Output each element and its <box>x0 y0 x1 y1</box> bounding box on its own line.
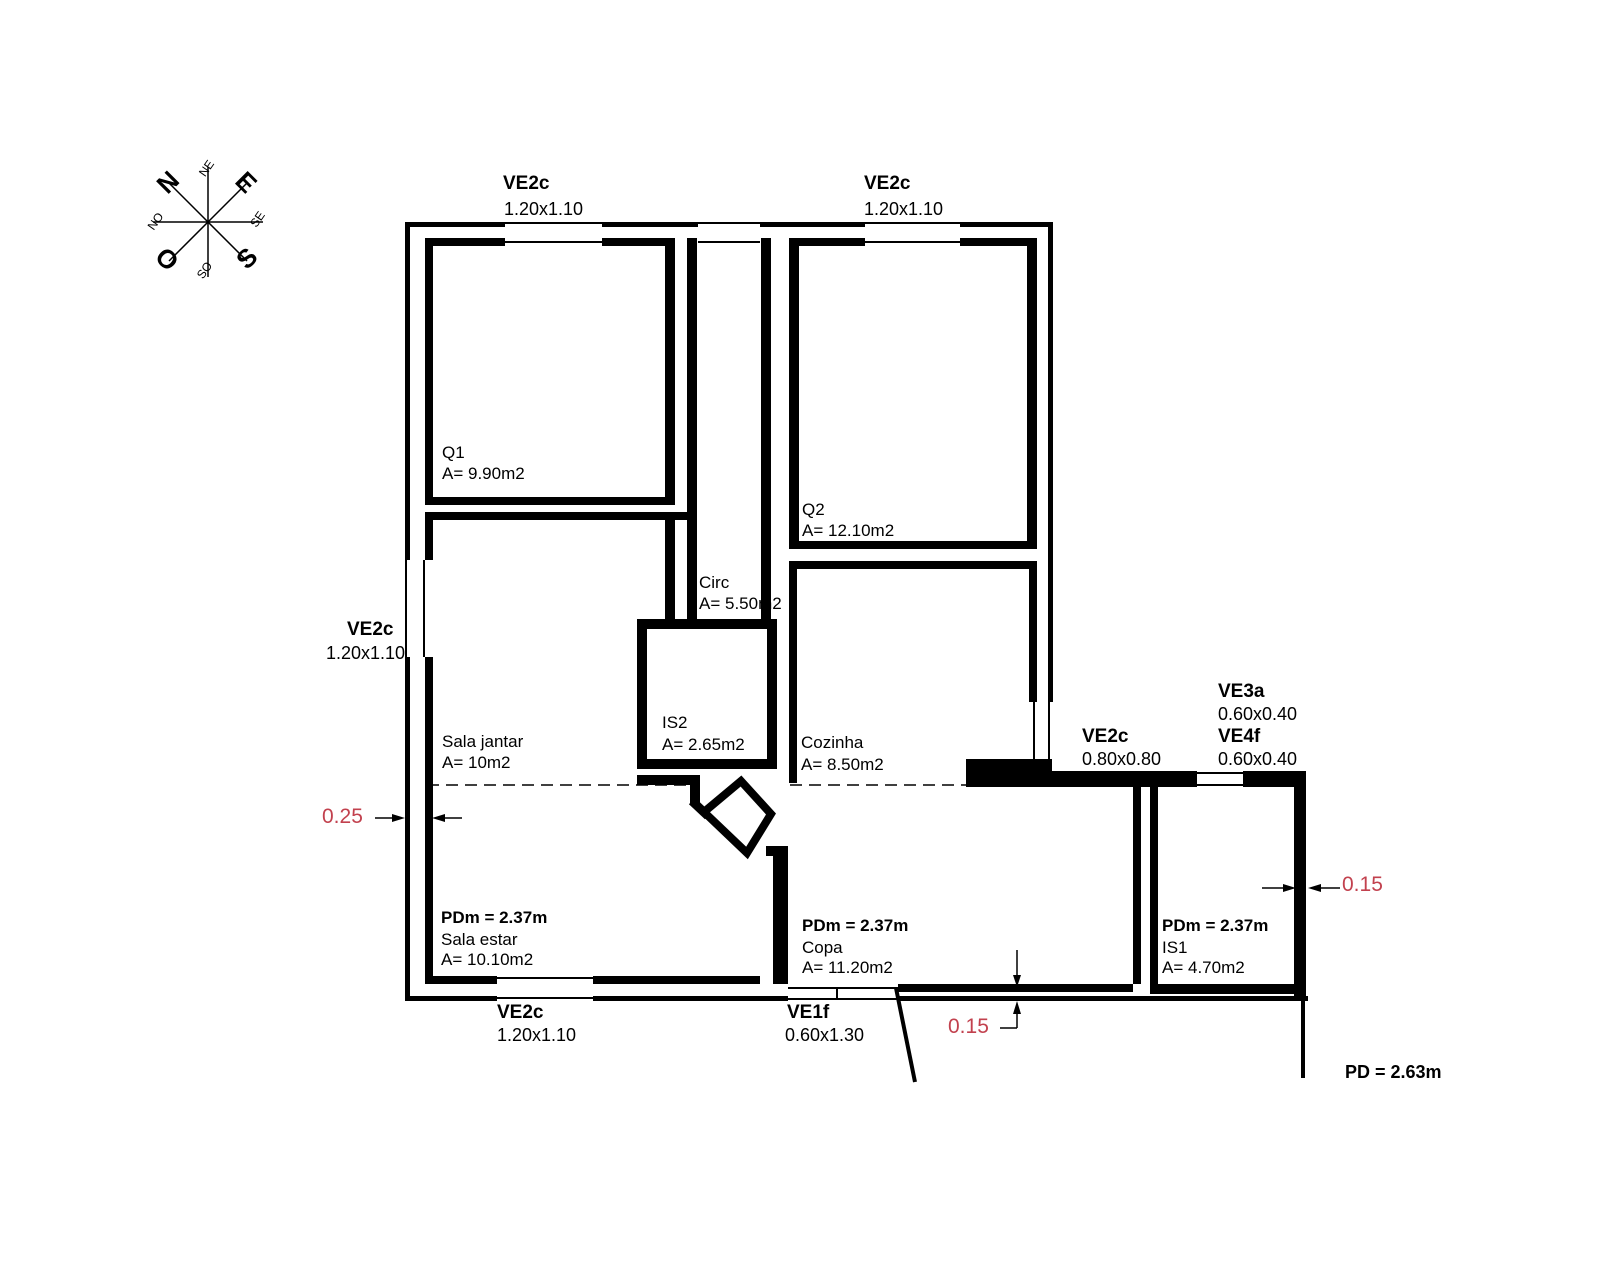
room-label-copa-pdm: PDm = 2.37m <box>802 917 908 936</box>
ve1f-door-leaf <box>896 988 915 1082</box>
room-label-is2-area: A= 2.65m2 <box>662 736 745 755</box>
floor-plan-sheet: N E S O NE SE SO NO VE2c 1.20x1.10 VE2c … <box>0 0 1600 1280</box>
interior-door-leaf <box>704 781 771 854</box>
room-label-q2-area: A= 12.10m2 <box>802 522 894 541</box>
window-label-top-right-name: VE2c <box>864 174 910 195</box>
window-label-ve1f-name: VE1f <box>787 1003 829 1024</box>
room-label-circ-area: A= 5.50m2 <box>699 595 782 614</box>
window-openings <box>405 222 1243 1000</box>
dimension-exterior-wall: 0.25 <box>322 805 363 828</box>
room-label-q1-name: Q1 <box>442 444 465 463</box>
room-label-is1-name: IS1 <box>1162 939 1188 958</box>
window-label-bottom-size: 1.20x1.10 <box>497 1026 576 1046</box>
dimension-right-wall: 0.15 <box>1342 873 1383 896</box>
room-label-cozinha-name: Cozinha <box>801 734 863 753</box>
room-label-copa-area: A= 11.20m2 <box>802 959 893 978</box>
window-label-ve4f-size: 0.60x0.40 <box>1218 750 1297 770</box>
room-label-sala-estar-pdm: PDm = 2.37m <box>441 909 547 928</box>
window-label-left-size: 1.20x1.10 <box>326 644 405 664</box>
ceiling-height-label: PD = 2.63m <box>1345 1063 1442 1083</box>
window-label-top-right-size: 1.20x1.10 <box>864 200 943 220</box>
window-label-ve1f-size: 0.60x1.30 <box>785 1026 864 1046</box>
room-label-is1-area: A= 4.70m2 <box>1162 959 1245 978</box>
window-label-ve3a-name: VE3a <box>1218 682 1264 703</box>
window-label-top-left-size: 1.20x1.10 <box>504 200 583 220</box>
room-label-sala-estar-area: A= 10.10m2 <box>441 951 533 970</box>
window-label-ve4f-name: VE4f <box>1218 727 1260 748</box>
room-label-sala-jantar-area: A= 10m2 <box>442 754 511 773</box>
room-label-cozinha-area: A= 8.50m2 <box>801 756 884 775</box>
room-label-q1-area: A= 9.90m2 <box>442 465 525 484</box>
room-label-sala-jantar-name: Sala jantar <box>442 733 523 752</box>
room-label-is2-name: IS2 <box>662 714 688 733</box>
room-label-is1-pdm: PDm = 2.37m <box>1162 917 1268 936</box>
interior-walls <box>425 238 1306 996</box>
room-label-sala-estar-name: Sala estar <box>441 931 518 950</box>
window-label-ve3a-size: 0.60x0.40 <box>1218 705 1297 725</box>
window-label-east-size: 0.80x0.80 <box>1082 750 1161 770</box>
dimension-bottom-wall: 0.15 <box>948 1015 989 1038</box>
window-label-bottom-name: VE2c <box>497 1003 543 1024</box>
window-label-top-left-name: VE2c <box>503 174 549 195</box>
room-label-copa-name: Copa <box>802 939 843 958</box>
window-label-east-name: VE2c <box>1082 727 1128 748</box>
room-label-q2-name: Q2 <box>802 501 825 520</box>
room-label-circ-name: Circ <box>699 574 729 593</box>
window-label-left-name: VE2c <box>347 620 393 641</box>
